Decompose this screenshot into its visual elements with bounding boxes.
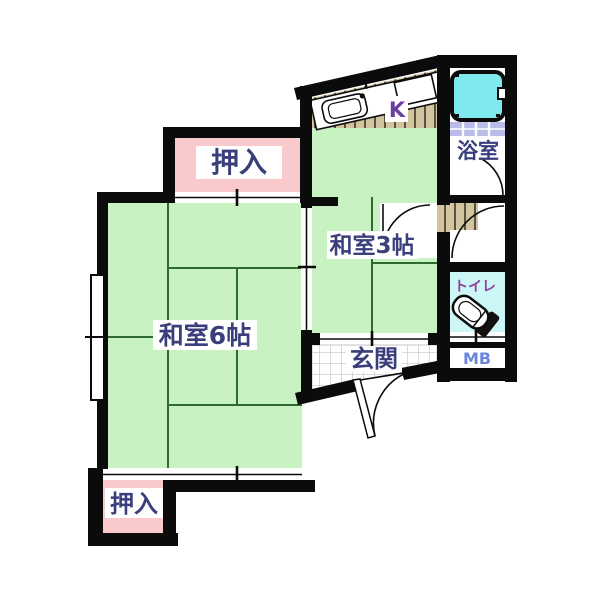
meter-box-label: MB [463,349,491,368]
toilet-label: トイレ [454,279,496,295]
entry-door-arc [373,373,406,436]
window [85,275,104,400]
closet-top-label: 押入 [211,146,267,179]
entrance-label: 玄関 [350,345,398,373]
closet-bottom-label: 押入 [110,490,158,518]
bathtub-icon [452,72,506,120]
kitchen-label: K [389,98,406,122]
floor-plan-canvas: 押入 押入 和室6帖 和室3帖 玄関 浴室 トイレ K MB [0,0,600,600]
kitchen-floor [312,128,437,197]
washitsu-3-label: 和室3帖 [329,232,414,259]
washitsu-6-label: 和室6帖 [159,321,251,350]
bathroom-label: 浴室 [457,139,499,163]
floor-plan: 押入 押入 和室6帖 和室3帖 玄関 浴室 トイレ K MB [0,0,600,600]
entry-door-leaf [353,379,375,438]
